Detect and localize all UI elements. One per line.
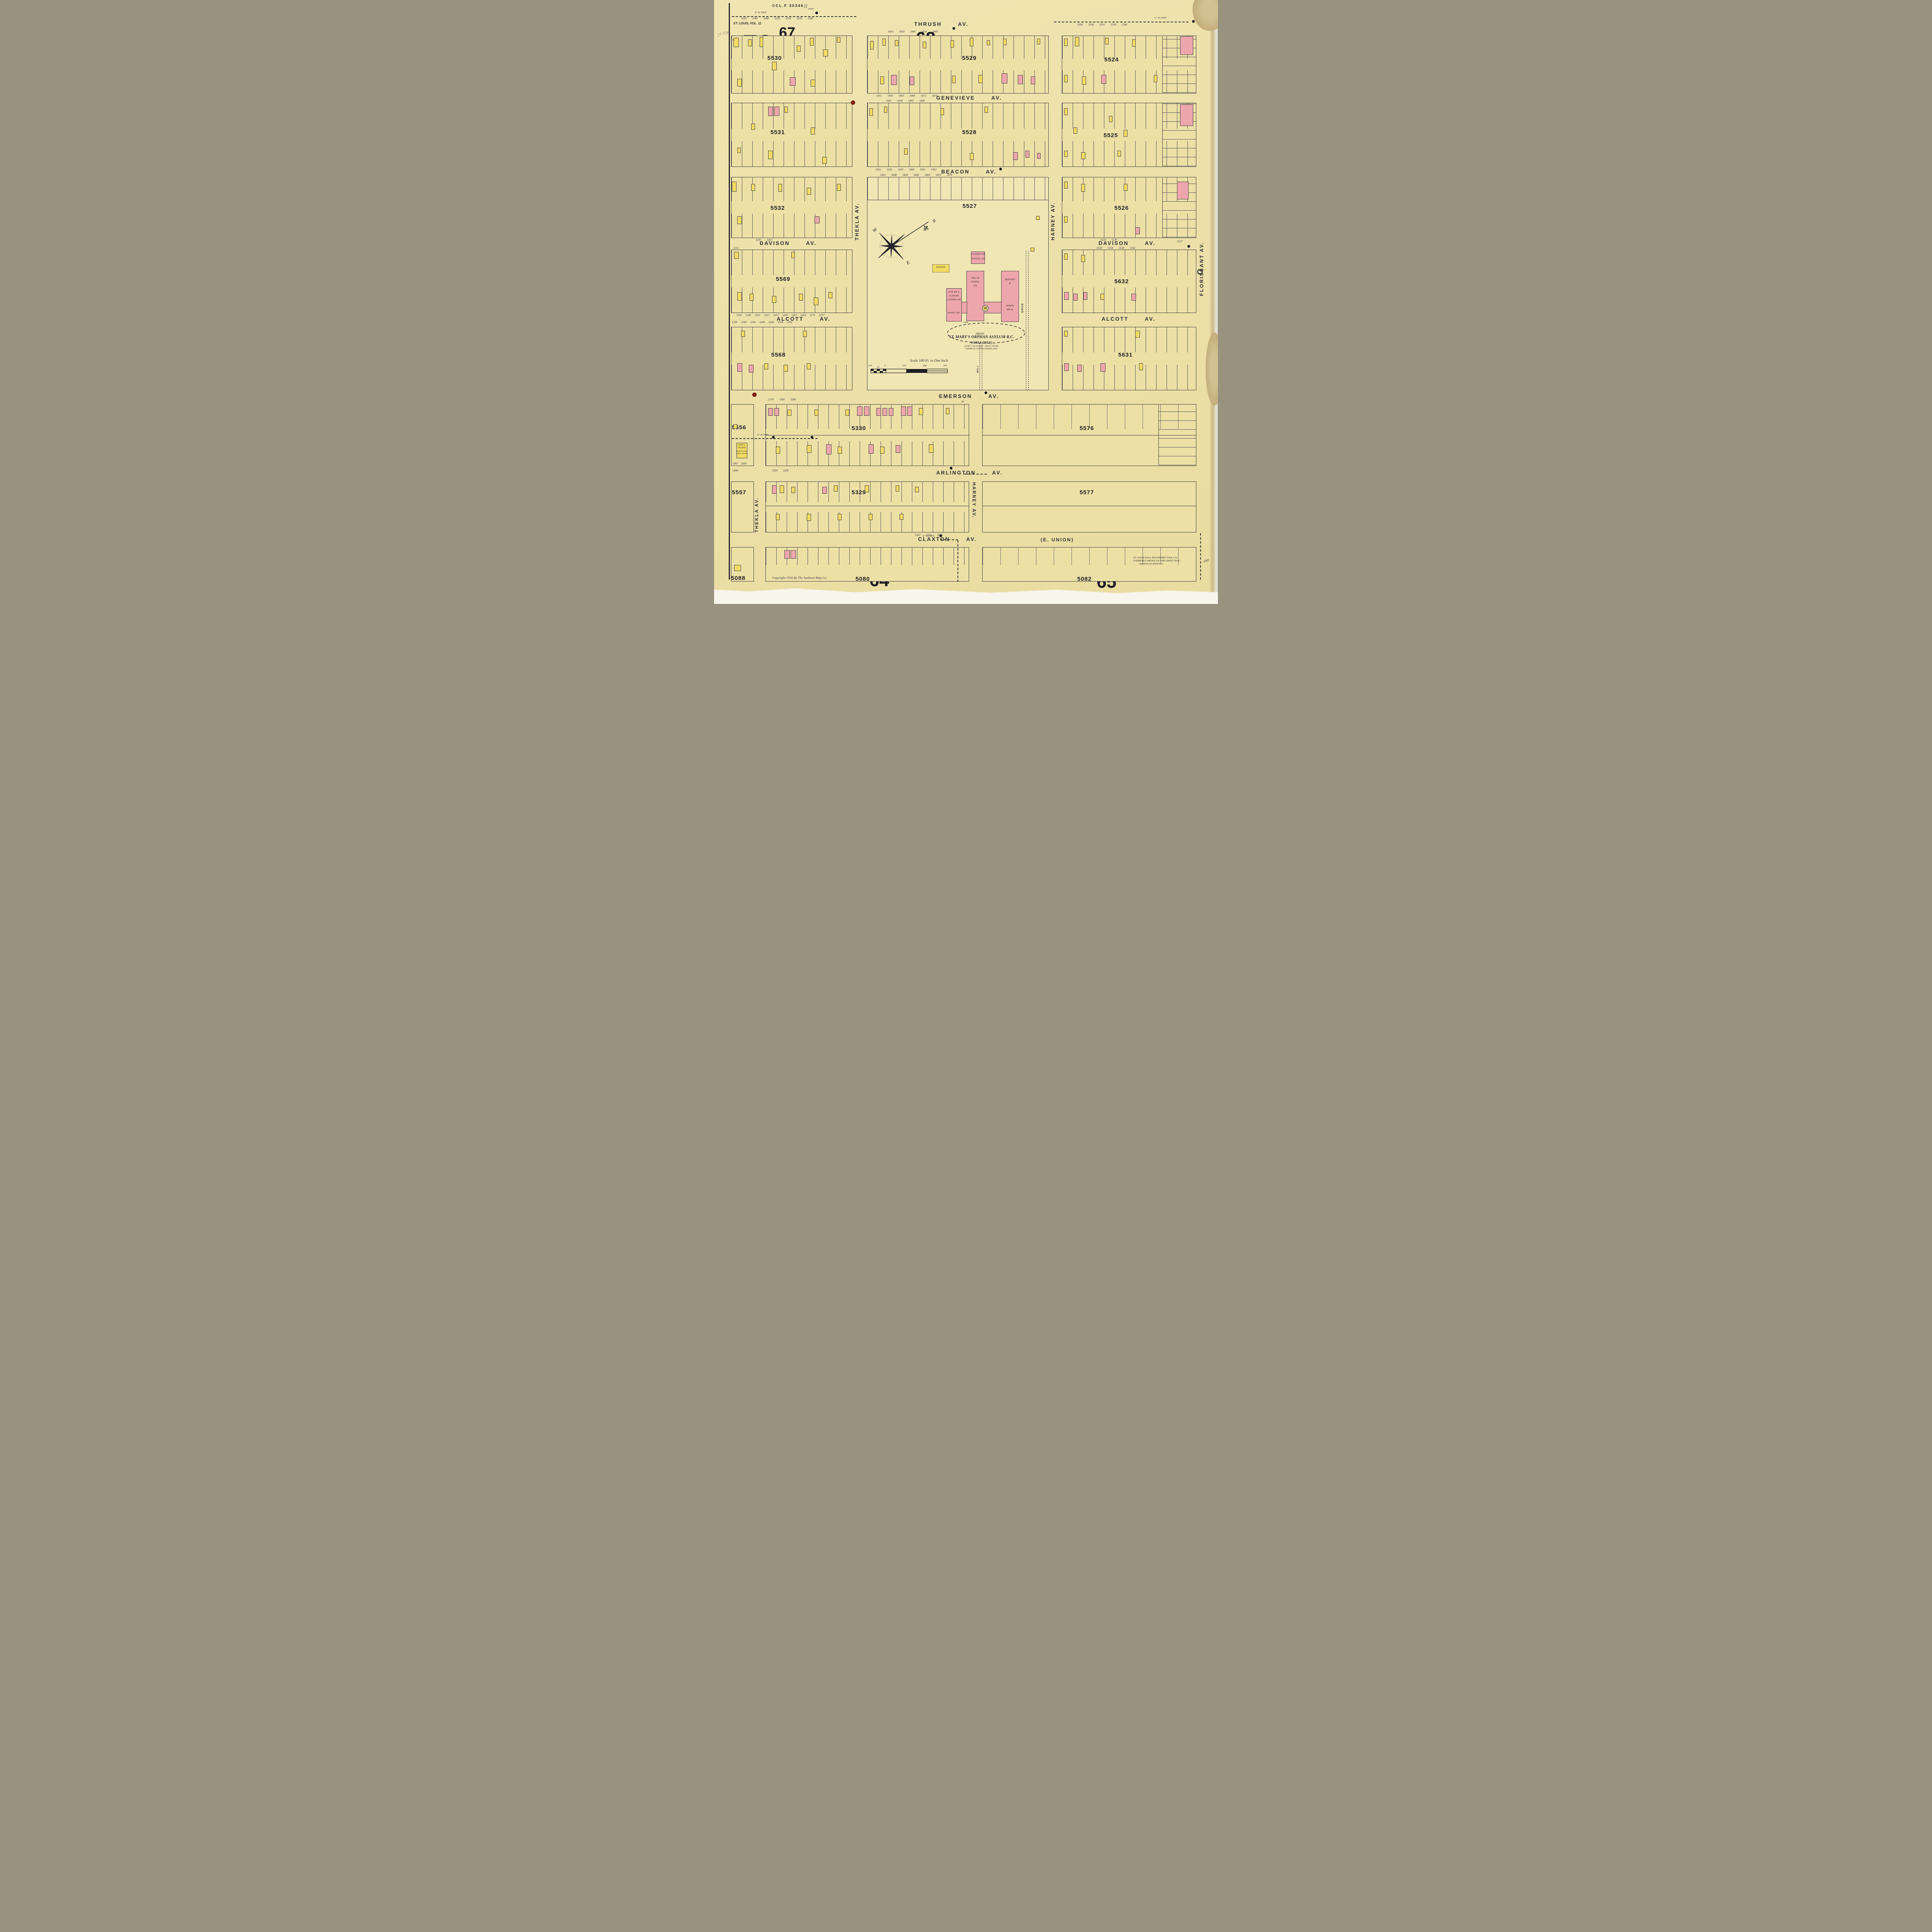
well-label: WELL xyxy=(977,359,979,373)
scalebar-tick: 100 xyxy=(902,364,906,367)
block-number: 5528 xyxy=(962,129,976,136)
torn-edge-blob xyxy=(1206,332,1218,406)
hydrant-label: HYD. xyxy=(808,8,814,10)
house-numbers: 5506 5508 5516 5530 5540 xyxy=(1077,23,1127,26)
play-room-label: PLAY RM. B. xyxy=(946,291,962,294)
church-label-2: CHURCH. xyxy=(736,447,748,449)
water-pipe-label: C" W. PIPE xyxy=(1155,17,1167,19)
city-block-5532 xyxy=(731,177,852,238)
water-pipe-line xyxy=(732,438,818,439)
asylum-extinguishers: CHEMICAL EXTINGUISHERS DIST. xyxy=(925,348,1037,350)
house-numbers: 5097 5099 xyxy=(733,462,747,465)
block-number: 5631 xyxy=(1118,352,1133,358)
scalebar-tick: 0 xyxy=(884,364,886,367)
block-number: 5576 xyxy=(1080,425,1094,432)
kitchen-label: KITCHEN xyxy=(1001,279,1019,281)
drive-boundary-dashes xyxy=(1028,251,1029,390)
asylum-campus-block-5527: 5527 ⚜ N W E PAVILION LAUNDRY R'MS HOSPI… xyxy=(867,177,1049,390)
street-label-emerson: EMERSON xyxy=(939,393,972,399)
house-numbers: 5232 xyxy=(733,247,739,250)
water-pipe-line xyxy=(957,540,958,582)
house-numbers: 5432 5434 5442 5458 xyxy=(886,99,925,102)
hydrant-icon xyxy=(999,168,1002,170)
block-number: 5525 xyxy=(1104,132,1118,139)
house-numbers: 5520 5528 5538 5542 xyxy=(1097,247,1135,250)
building-number-badge: 35 xyxy=(982,305,989,312)
compass-rose-icon: ⚜ N W E xyxy=(871,216,937,266)
pencil-note: 27-726 xyxy=(717,30,730,37)
church-label: EPISC'L xyxy=(736,444,748,447)
city-block-5531 xyxy=(731,103,852,167)
gate-label: GATE xyxy=(963,322,968,324)
pencil-initial: R xyxy=(804,3,808,10)
hydrant-icon xyxy=(1192,20,1195,23)
asylum-subtitle: (GIRLS ONLY) xyxy=(925,340,1037,344)
house-numbers: 5431 5435 5439 5449 5451 5453 xyxy=(876,168,937,171)
house-numbers: 5241 5245 5251 5253 5257 5259 5267 5269 … xyxy=(736,314,825,317)
relocation-note-2: FORMERLY SHOWN ON THIS SHEET NOW xyxy=(1133,560,1180,562)
water-pipe-line xyxy=(1054,22,1189,22)
water-pipe-label: 6" W. PIPE xyxy=(757,434,769,436)
church-lights-label: LIGHTS: ELEC. xyxy=(736,450,748,452)
block-number: 5080 xyxy=(855,576,870,582)
block-number: 5088 xyxy=(731,575,745,582)
water-main-dot xyxy=(752,393,757,397)
hydrant-icon xyxy=(950,467,952,469)
water-pipe-line xyxy=(1200,533,1201,580)
street-label-florissant: FLORISSANT AV. xyxy=(1199,238,1204,296)
block-number: 5529 xyxy=(962,55,976,61)
water-pipe-line xyxy=(940,539,958,540)
house-numbers: 5416 5430 5446 5454 5460 xyxy=(888,30,938,33)
street-label-e-union: (E. UNION) xyxy=(1041,537,1074,543)
water-pipe-line xyxy=(964,474,987,474)
first-floor-label: 1ST. xyxy=(966,285,984,287)
scalebar-tick: 200 xyxy=(923,364,927,367)
block-number: 5524 xyxy=(1104,56,1119,63)
street-label-harney-south: HARNEY AV. xyxy=(971,482,976,544)
hydrant-icon xyxy=(772,436,775,439)
water-main-dot xyxy=(851,100,855,105)
kitchen-label-2: B. xyxy=(1001,282,1019,285)
svg-text:W: W xyxy=(872,227,878,233)
laundry-label: LAUNDRY R'MS xyxy=(970,253,986,256)
sanborn-map-sheet: 27-726 ©CL.F 30346 R HYD. 6" W. PIPE C" … xyxy=(714,0,1218,604)
copyright-note: Copyright 1916 By The Sanborn Map Co. xyxy=(772,576,827,580)
house-numbers: 5247 5267 xyxy=(756,238,772,241)
hall-label: HALL & xyxy=(966,277,984,280)
block-number: 5082 xyxy=(1077,576,1092,582)
house-numbers: 5432 5448 5458 5460 5466 5472 5476 xyxy=(880,173,952,177)
relocation-note-3: SHOWN ON SHEET 15 xyxy=(1139,563,1163,565)
svg-text:⚜: ⚜ xyxy=(920,222,932,235)
drive-boundary-dashes xyxy=(1026,251,1026,390)
city-block-5568 xyxy=(731,327,852,390)
class-room-label: CLASS RM. xyxy=(946,295,962,298)
street-label-thekla-south: THEKLA AV. xyxy=(755,471,759,532)
house-numbers: 5431 5449 5467 5469 5473 5479 xyxy=(876,94,937,97)
street-label-harney-north: HARNEY AV. xyxy=(1050,175,1056,240)
clothing-room-label: CLOTHING RM. xyxy=(946,299,962,301)
block-number: 5527 xyxy=(963,203,977,209)
block-number: 5330 xyxy=(852,425,866,432)
lot-lines xyxy=(867,177,1048,200)
pavilion-label: PAVILION xyxy=(933,266,949,269)
relocation-note-1: ST. LOUIS WELL MACHINERY TOOL CO. xyxy=(1133,556,1177,559)
distance-label: 60' xyxy=(961,400,964,403)
chapel-label: CHAPEL xyxy=(966,281,984,284)
street-label-thekla-north: THEKLA AV. xyxy=(854,175,860,240)
scalebar-title: Scale 100 Ft. to One Inch. xyxy=(889,359,970,363)
hydrant-icon xyxy=(815,12,818,14)
outbuilding xyxy=(1031,248,1034,252)
block-number: 5557 xyxy=(732,489,746,496)
block-number: 5632 xyxy=(1114,278,1129,285)
hydrant-icon xyxy=(1187,245,1190,248)
torn-right-edge xyxy=(1209,0,1218,604)
city-block-5528 xyxy=(867,103,1049,167)
svg-text:E: E xyxy=(906,260,911,265)
block-number: 5530 xyxy=(767,55,782,61)
street-label-thrush: THRUSH xyxy=(914,21,942,27)
sheet-border-line xyxy=(729,3,730,580)
hydrant-icon xyxy=(811,436,813,439)
lot-lines xyxy=(1158,405,1196,465)
asylum-utilities: LIGHT: GAS & ELEC - HEAT: STEAM. xyxy=(925,345,1037,347)
hospital-label: HOSPITAL 2ND xyxy=(970,258,986,260)
torn-corner-blob xyxy=(1192,0,1218,31)
outbuilding xyxy=(1036,216,1040,220)
scalebar-tick: 100 xyxy=(868,364,872,367)
street-label-alcott-east: ALCOTT xyxy=(1102,316,1129,322)
house-numbers: 5376 5380 5388 xyxy=(768,398,796,401)
house-numbers: 5094 xyxy=(733,469,738,472)
drive-vertical-label: DRIVE xyxy=(1021,289,1024,313)
dining-label: DINING xyxy=(1001,305,1019,308)
scalebar-tick: 300 xyxy=(943,364,947,367)
volume-label: ST. LOUIS, VOL. 11 xyxy=(733,22,761,25)
hydrant-icon xyxy=(985,391,987,394)
block-number: 5568 xyxy=(771,352,786,358)
scalebar-icon xyxy=(871,368,949,374)
distance-label: 100' xyxy=(1203,558,1209,563)
street-label-arlington: ARLINGTON xyxy=(936,470,976,476)
svg-text:N: N xyxy=(931,218,937,224)
house-numbers: 5238 5240 5244 5248 5250 5254 5256 xyxy=(732,321,793,324)
block-number: 5577 xyxy=(1080,489,1094,496)
city-block-5569 xyxy=(731,250,852,313)
copyright-stamp: ©CL.F 30346 xyxy=(772,4,804,8)
block-number: 5329 xyxy=(852,489,866,496)
street-label-florissant-o: O xyxy=(1195,269,1204,275)
torn-bottom-edge xyxy=(714,582,1218,604)
house-numbers: 5300 5306 xyxy=(772,469,789,472)
distance-label: 15 xyxy=(732,39,735,41)
block-number: 5569 xyxy=(776,276,790,282)
city-block-5631 xyxy=(1062,327,1196,390)
asylum-connector xyxy=(961,302,967,313)
asylum-title: ST. MARY'S ORPHAN ASYLUM R.C. xyxy=(925,335,1037,339)
block-number: 5532 xyxy=(770,205,785,211)
dining-label-2: RM. B. xyxy=(1001,309,1019,311)
block-number: 5526 xyxy=(1114,205,1129,211)
sewing-room-label: SEWING 2ND. xyxy=(946,312,962,315)
house-numbers: 5367 5375 5383 xyxy=(915,534,943,537)
block-number: 5531 xyxy=(770,129,785,136)
hydrant-icon xyxy=(952,27,955,30)
church-heat-label: HEAT: STOVE xyxy=(736,452,748,454)
street-label-genevieve: GENEVIEVE xyxy=(936,95,975,101)
house-numbers: 5533 5539 xyxy=(1100,238,1117,241)
house-numbers: 5557 xyxy=(1177,240,1182,243)
water-pipe-label: 6" W. PIPE xyxy=(755,11,767,14)
house-numbers: 5230 5240 5248 5250 5254 5256 5260 xyxy=(741,17,813,20)
